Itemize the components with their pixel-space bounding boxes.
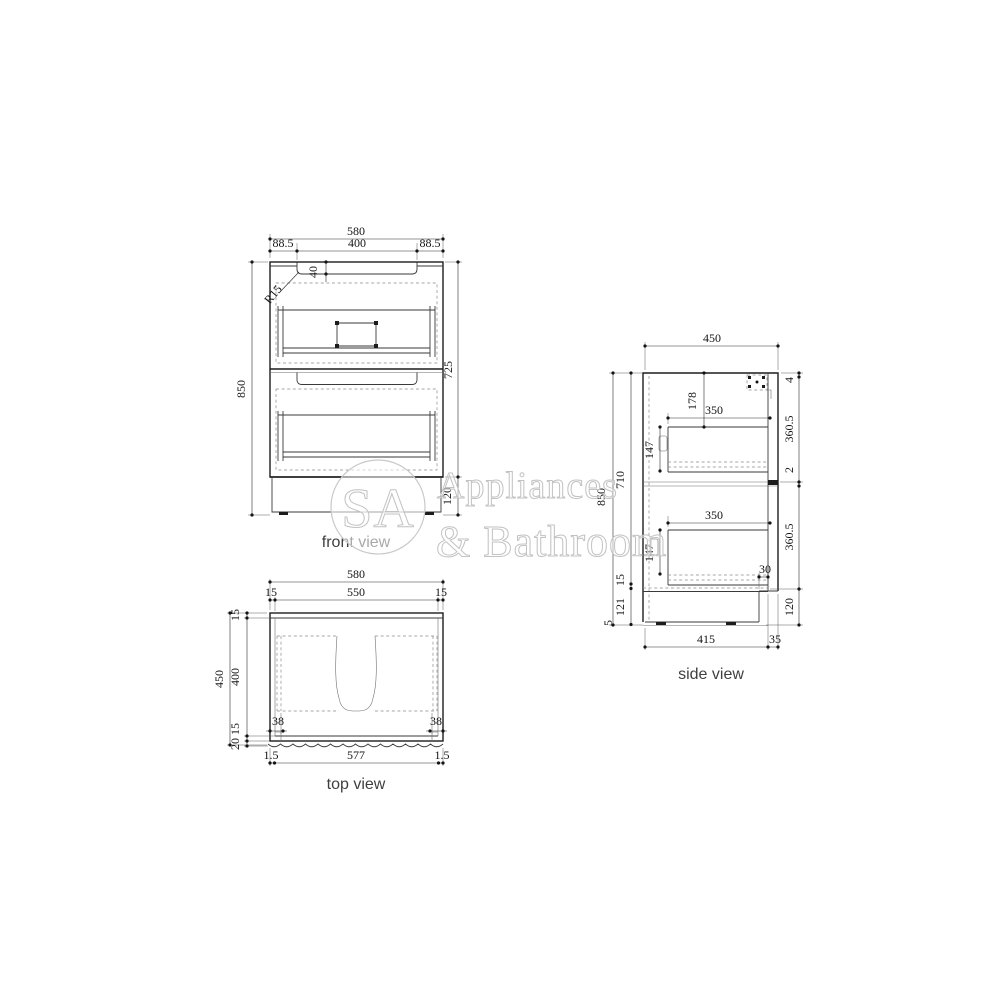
side-drawer-top xyxy=(659,427,768,472)
side-dim-plinth-height: 121 xyxy=(613,598,627,616)
top-front-edge-wave xyxy=(268,744,443,747)
top-plumbing-cutout xyxy=(336,636,377,711)
side-dim-upper-front: 360.5 xyxy=(782,416,796,443)
watermark-line2: & Bathroom xyxy=(436,517,667,566)
front-dim-body-height: 725 xyxy=(441,361,455,379)
front-handle-recess-bottom xyxy=(297,373,417,385)
front-dim-corner-radius: R15 xyxy=(261,282,285,306)
top-drawer-box-right xyxy=(375,636,437,711)
top-dim-edge-left: 1.5 xyxy=(264,748,279,762)
technical-drawing-page: 580 88.5 400 88.5 40 R15 850 725 120 fro… xyxy=(0,0,1000,1000)
watermark: SA Appliances & Bathroom xyxy=(331,460,667,566)
front-dim-overall-height: 850 xyxy=(234,380,248,398)
top-dim-panel-right: 15 xyxy=(435,585,447,599)
top-drawer-box-left xyxy=(277,636,337,711)
top-dim-front-width: 577 xyxy=(347,748,365,762)
side-dim-drawer-front-top: 147 xyxy=(642,441,656,459)
side-dim-lower-front: 360.5 xyxy=(782,524,796,551)
side-dim-overall-depth: 450 xyxy=(703,331,721,345)
side-drawer-bottom xyxy=(650,530,768,585)
front-dim-right-margin: 88.5 xyxy=(420,236,441,250)
side-dim-front-offset: 35 xyxy=(769,632,781,646)
side-dim-bottom-panel: 15 xyxy=(613,574,627,586)
front-drawer-bottom-box xyxy=(278,411,435,461)
top-view-label: top view xyxy=(327,776,386,793)
front-drawer-bottom-dashed xyxy=(276,389,437,470)
watermark-initials: SA xyxy=(341,478,415,540)
side-dim-top-panel: 4 xyxy=(782,377,796,383)
top-dim-back-panel: 15 xyxy=(228,609,242,621)
side-dim-kick-height: 120 xyxy=(782,598,796,616)
top-dim-panel-left: 15 xyxy=(265,585,277,599)
side-dim-front-gap: 2 xyxy=(782,467,796,473)
top-cabinet-outline xyxy=(270,613,443,741)
top-dim-offset-right: 38 xyxy=(430,714,442,728)
side-dim-drawer-depth-bottom: 350 xyxy=(705,508,723,522)
side-kick xyxy=(643,591,768,626)
front-dim-left-margin: 88.5 xyxy=(273,236,294,250)
top-dim-overall-width: 580 xyxy=(347,567,365,581)
side-dim-base-depth: 415 xyxy=(697,632,715,646)
top-dim-inner-depth: 400 xyxy=(228,668,242,686)
top-dim-overall-depth: 450 xyxy=(212,670,226,688)
front-dim-handle-depth: 40 xyxy=(306,266,320,278)
side-top-bracket-detail xyxy=(747,375,771,399)
side-view-label: side view xyxy=(678,666,744,683)
top-dim-front-panel: 15 xyxy=(228,723,242,735)
side-view: 450 178 350 147 350 147 30 4 360.5 2 360… xyxy=(594,331,803,683)
top-dim-offset-left: 38 xyxy=(272,714,284,728)
side-drawer-gap-mark xyxy=(768,480,778,485)
watermark-line1: Appliances xyxy=(437,465,618,507)
side-dim-top-to-drawer: 178 xyxy=(685,392,699,410)
top-dim-edge-right: 1.5 xyxy=(435,748,450,762)
top-dim-inner-width: 550 xyxy=(347,585,365,599)
vanity-drawing: 580 88.5 400 88.5 40 R15 850 725 120 fro… xyxy=(0,0,1000,1000)
side-dim-floor-gap: 5 xyxy=(601,620,615,626)
top-dim-front-lip: 20 xyxy=(228,738,242,750)
front-dim-handle-width: 400 xyxy=(348,236,366,250)
side-dim-kick-recess: 30 xyxy=(759,562,771,576)
front-drawer-top-box xyxy=(278,306,435,357)
side-dim-drawer-depth-top: 350 xyxy=(705,403,723,417)
top-view: 580 15 550 15 450 15 400 15 20 38 38 1.5… xyxy=(212,567,450,793)
